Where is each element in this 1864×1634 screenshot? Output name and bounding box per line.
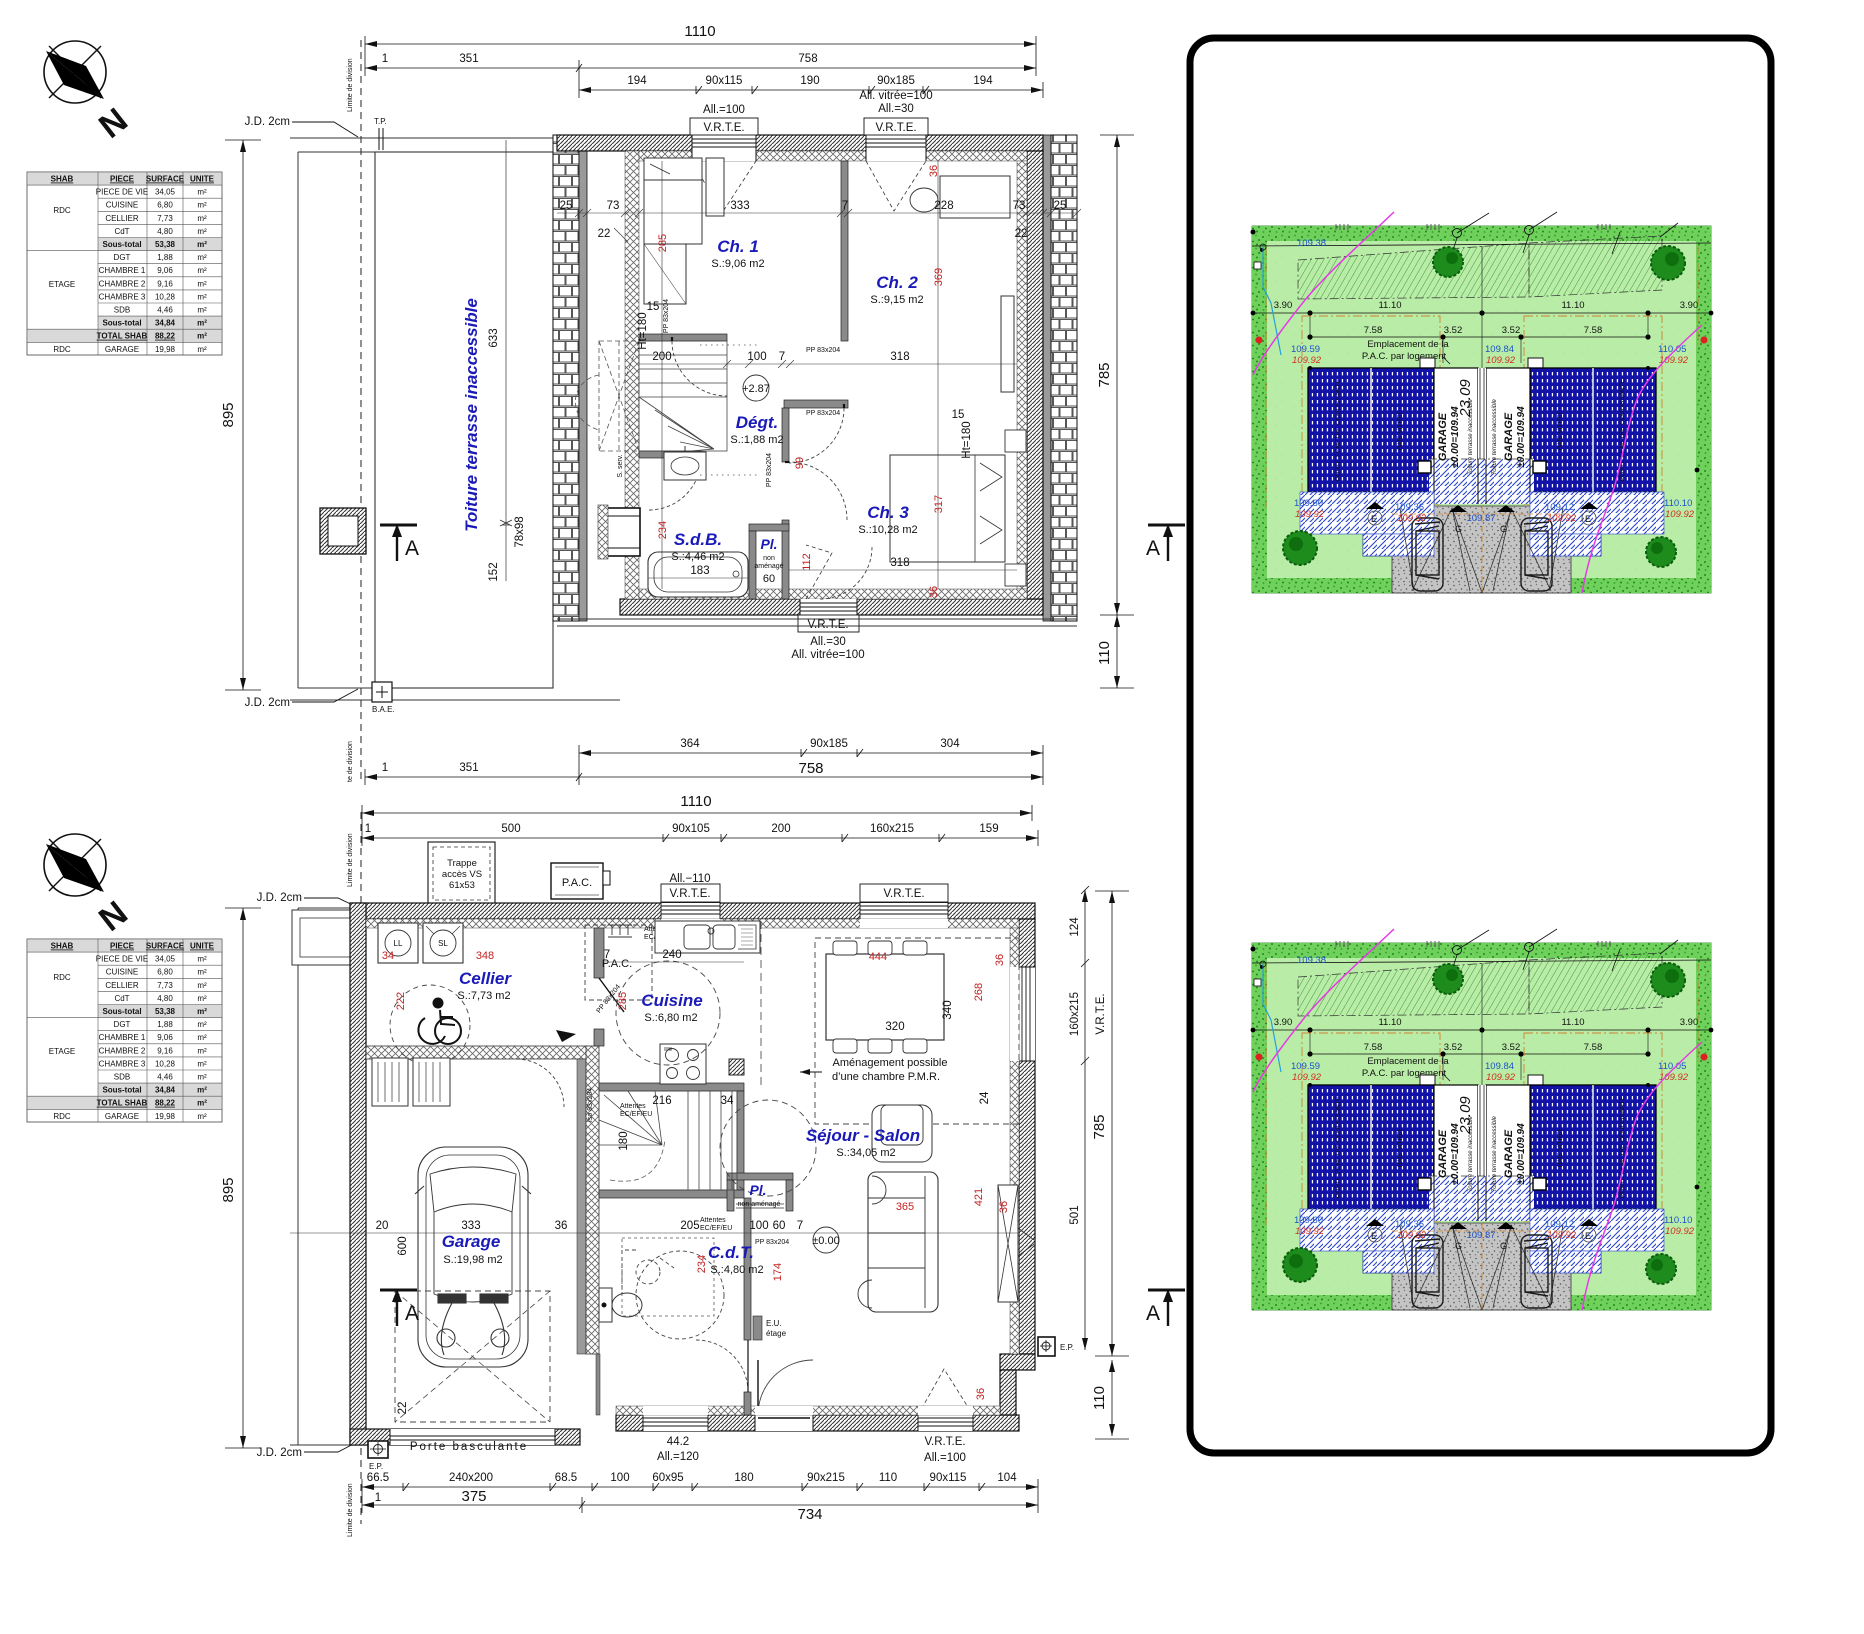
svg-text:100: 100 bbox=[610, 1472, 629, 1484]
svg-text:CELLIER: CELLIER bbox=[105, 214, 139, 223]
svg-text:421: 421 bbox=[973, 1188, 985, 1206]
svg-text:88,22: 88,22 bbox=[155, 332, 176, 341]
svg-text:24: 24 bbox=[979, 1091, 991, 1104]
svg-text:S.:9,15 m2: S.:9,15 m2 bbox=[870, 294, 923, 306]
svg-text:304: 304 bbox=[940, 738, 960, 750]
svg-text:25: 25 bbox=[560, 200, 573, 212]
svg-text:d’une chambre P.M.R.: d’une chambre P.M.R. bbox=[832, 1071, 940, 1083]
svg-text:Toiture terrasse inaccessible: Toiture terrasse inaccessible bbox=[462, 298, 481, 532]
svg-text:109.92: 109.92 bbox=[1547, 513, 1577, 524]
svg-text:P.A.C.: P.A.C. bbox=[562, 877, 592, 889]
svg-text:PP 83x204: PP 83x204 bbox=[806, 347, 840, 354]
svg-text:36: 36 bbox=[994, 954, 1006, 966]
svg-text:Pl.: Pl. bbox=[749, 1182, 766, 1198]
svg-text:20: 20 bbox=[376, 1220, 389, 1232]
svg-text:All.=100: All.=100 bbox=[703, 104, 745, 116]
svg-text:268: 268 bbox=[973, 983, 985, 1001]
svg-text:34: 34 bbox=[721, 1095, 734, 1107]
svg-text:J.D. 2cm: J.D. 2cm bbox=[257, 892, 302, 904]
svg-text:365: 365 bbox=[896, 1201, 914, 1213]
svg-text:36: 36 bbox=[555, 1220, 568, 1232]
svg-text:318: 318 bbox=[890, 557, 909, 569]
svg-text:501: 501 bbox=[1069, 1205, 1081, 1224]
svg-text:All.=30: All.=30 bbox=[878, 103, 913, 115]
svg-text:109.36: 109.36 bbox=[1395, 502, 1424, 513]
svg-text:109.92: 109.92 bbox=[1659, 355, 1689, 366]
svg-text:J.D. 2cm: J.D. 2cm bbox=[245, 116, 290, 128]
svg-text:340: 340 bbox=[942, 1000, 954, 1019]
svg-text:T.P.: T.P. bbox=[374, 117, 387, 126]
svg-text:étage: étage bbox=[766, 1329, 787, 1338]
svg-text:PP 83x204: PP 83x204 bbox=[663, 299, 670, 333]
svg-text:1: 1 bbox=[375, 1492, 381, 1504]
svg-text:S.:4,80 m2: S.:4,80 m2 bbox=[710, 1264, 763, 1276]
svg-text:GARAGE: GARAGE bbox=[1437, 412, 1449, 461]
svg-text:Trappe: Trappe bbox=[447, 858, 477, 869]
svg-text:S.:9,06 m2: S.:9,06 m2 bbox=[711, 258, 764, 270]
svg-text:73: 73 bbox=[607, 200, 620, 212]
svg-text:B.A.E.: B.A.E. bbox=[372, 705, 395, 714]
svg-text:109.59: 109.59 bbox=[1291, 344, 1320, 355]
svg-text:222: 222 bbox=[395, 992, 407, 1010]
svg-text:364: 364 bbox=[680, 738, 700, 750]
svg-text:Cellier: Cellier bbox=[459, 969, 512, 988]
svg-text:109.84: 109.84 bbox=[1485, 344, 1514, 355]
svg-text:234: 234 bbox=[657, 521, 669, 539]
svg-text:S. serv.: S. serv. bbox=[617, 454, 624, 477]
svg-text:Porte basculante: Porte basculante bbox=[410, 1441, 528, 1453]
svg-text:CdT: CdT bbox=[114, 227, 129, 236]
svg-text:100: 100 bbox=[749, 1220, 768, 1232]
svg-text:aménagé: aménagé bbox=[754, 563, 783, 570]
svg-text:All.=100: All.=100 bbox=[924, 1452, 966, 1464]
svg-text:34,84: 34,84 bbox=[155, 319, 176, 328]
svg-text:G: G bbox=[1500, 524, 1507, 534]
svg-text:7: 7 bbox=[779, 351, 785, 363]
svg-text:109.38: 109.38 bbox=[1297, 238, 1326, 249]
svg-text:109.92: 109.92 bbox=[1665, 509, 1695, 520]
svg-text:Ht=180: Ht=180 bbox=[961, 421, 973, 458]
svg-text:PIECE DE VIE: PIECE DE VIE bbox=[96, 188, 148, 197]
svg-text:+2.87: +2.87 bbox=[742, 383, 770, 395]
svg-text:36: 36 bbox=[998, 1201, 1010, 1213]
svg-text:109.92: 109.92 bbox=[1292, 355, 1322, 366]
svg-text:te de division: te de division bbox=[347, 741, 354, 782]
svg-text:E.P.: E.P. bbox=[369, 1462, 383, 1471]
svg-text:180: 180 bbox=[734, 1472, 753, 1484]
svg-text:m²: m² bbox=[197, 188, 207, 197]
svg-text:109.92: 109.92 bbox=[1397, 513, 1427, 524]
svg-text:m²: m² bbox=[197, 292, 207, 301]
svg-text:±0.00=109.94: ±0.00=109.94 bbox=[1516, 406, 1527, 468]
svg-text:22: 22 bbox=[1015, 228, 1028, 240]
svg-text:BAIE VITREE: BAIE VITREE bbox=[1397, 409, 1404, 450]
svg-text:Aménagement possible: Aménagement possible bbox=[833, 1057, 948, 1069]
svg-text:104: 104 bbox=[997, 1472, 1017, 1484]
svg-text:285: 285 bbox=[657, 234, 669, 252]
svg-text:6,80: 6,80 bbox=[157, 201, 173, 210]
svg-text:C.d.T.: C.d.T. bbox=[708, 1243, 754, 1262]
svg-text:758: 758 bbox=[798, 760, 823, 777]
svg-text:E.U.: E.U. bbox=[766, 1319, 782, 1328]
svg-text:ETAGE: ETAGE bbox=[49, 280, 76, 289]
svg-text:E.P.: E.P. bbox=[1060, 1343, 1074, 1352]
svg-text:accès VS: accès VS bbox=[442, 869, 482, 880]
svg-text:60x95: 60x95 bbox=[652, 1472, 683, 1484]
svg-text:1: 1 bbox=[382, 762, 388, 774]
svg-text:PIECE: PIECE bbox=[110, 175, 135, 184]
svg-text:160x215: 160x215 bbox=[1069, 992, 1081, 1036]
svg-text:S.:34,05 m2: S.:34,05 m2 bbox=[836, 1147, 895, 1159]
svg-text:S.:6,80 m2: S.:6,80 m2 bbox=[644, 1012, 697, 1024]
svg-text:m²: m² bbox=[197, 345, 207, 354]
svg-text:E: E bbox=[1585, 514, 1591, 524]
svg-text:J.D. 2cm: J.D. 2cm bbox=[257, 1447, 302, 1459]
svg-text:Ch. 3: Ch. 3 bbox=[867, 503, 909, 522]
svg-text:1: 1 bbox=[365, 823, 371, 835]
svg-text:LL: LL bbox=[394, 939, 403, 948]
svg-text:G: G bbox=[1455, 524, 1462, 534]
svg-text:34,05: 34,05 bbox=[155, 188, 176, 197]
svg-text:All.=120: All.=120 bbox=[657, 1451, 699, 1463]
svg-text:Ch. 1: Ch. 1 bbox=[717, 237, 759, 256]
svg-text:S.:10,28 m2: S.:10,28 m2 bbox=[858, 524, 917, 536]
svg-text:758: 758 bbox=[798, 53, 817, 65]
svg-text:216: 216 bbox=[652, 1095, 671, 1107]
svg-text:GARAGE: GARAGE bbox=[105, 345, 139, 354]
svg-text:7,73: 7,73 bbox=[157, 214, 173, 223]
svg-text:E: E bbox=[1371, 514, 1377, 524]
svg-text:109.87: 109.87 bbox=[1466, 513, 1495, 524]
svg-text:1: 1 bbox=[382, 53, 388, 65]
svg-text:Iso 83x204: Iso 83x204 bbox=[587, 1088, 594, 1122]
svg-text:318: 318 bbox=[890, 351, 909, 363]
svg-text:4,80: 4,80 bbox=[157, 227, 173, 236]
svg-text:CHAMBRE 1: CHAMBRE 1 bbox=[99, 266, 146, 275]
svg-text:All. vitrée=100: All. vitrée=100 bbox=[791, 649, 864, 661]
svg-text:90x215: 90x215 bbox=[807, 1472, 845, 1484]
svg-text:734: 734 bbox=[797, 1506, 822, 1523]
svg-text:90x105: 90x105 bbox=[672, 823, 710, 835]
svg-text:15: 15 bbox=[952, 409, 965, 421]
svg-text:25: 25 bbox=[1054, 200, 1067, 212]
svg-text:Dégt.: Dégt. bbox=[736, 413, 779, 432]
svg-text:V.R.T.E.: V.R.T.E. bbox=[669, 888, 710, 900]
svg-text:90x115: 90x115 bbox=[930, 1472, 967, 1484]
svg-text:Sous-total: Sous-total bbox=[102, 319, 141, 328]
svg-text:895: 895 bbox=[220, 1177, 237, 1202]
svg-text:S.d.B.: S.d.B. bbox=[674, 530, 722, 549]
svg-text:444: 444 bbox=[869, 951, 887, 963]
svg-text:44.2: 44.2 bbox=[667, 1436, 689, 1448]
svg-text:375: 375 bbox=[461, 1488, 486, 1505]
svg-text:Limite de division: Limite de division bbox=[347, 833, 354, 887]
svg-text:200: 200 bbox=[771, 823, 790, 835]
svg-text:Emplacement de la: Emplacement de la bbox=[1367, 339, 1449, 350]
svg-text:SURFACE: SURFACE bbox=[146, 175, 185, 184]
svg-text:22: 22 bbox=[598, 228, 611, 240]
svg-text:CUISINE: CUISINE bbox=[106, 201, 138, 210]
svg-text:Ch. 2: Ch. 2 bbox=[876, 273, 918, 292]
svg-text:333: 333 bbox=[730, 200, 749, 212]
svg-text:m²: m² bbox=[197, 266, 207, 275]
svg-text:90x185: 90x185 bbox=[810, 738, 848, 750]
svg-text:785: 785 bbox=[1096, 362, 1113, 387]
svg-text:600: 600 bbox=[397, 1236, 409, 1255]
svg-text:36: 36 bbox=[975, 1388, 987, 1400]
svg-text:3.52: 3.52 bbox=[1444, 325, 1463, 336]
svg-text:DGT: DGT bbox=[114, 253, 131, 262]
svg-text:non aménagé: non aménagé bbox=[738, 1201, 781, 1208]
svg-text:110: 110 bbox=[1091, 1386, 1108, 1410]
svg-text:4,46: 4,46 bbox=[157, 306, 173, 315]
svg-text:34: 34 bbox=[382, 950, 394, 962]
svg-text:3.90: 3.90 bbox=[1274, 300, 1293, 311]
svg-text:7: 7 bbox=[842, 200, 848, 212]
svg-text:109.92: 109.92 bbox=[1295, 509, 1325, 520]
svg-text:110.10: 110.10 bbox=[1664, 498, 1692, 509]
svg-text:PP 83x204: PP 83x204 bbox=[755, 1239, 789, 1246]
svg-text:234: 234 bbox=[696, 1255, 708, 1273]
svg-text:V.R.T.E.: V.R.T.E. bbox=[875, 122, 916, 134]
svg-text:60: 60 bbox=[763, 573, 775, 585]
svg-text:RDC: RDC bbox=[53, 345, 71, 354]
svg-text:EC/EF/EU: EC/EF/EU bbox=[620, 1111, 652, 1118]
svg-text:±0.00: ±0.00 bbox=[812, 1235, 839, 1247]
svg-text:9,06: 9,06 bbox=[157, 266, 173, 275]
svg-text:240x200: 240x200 bbox=[449, 1472, 493, 1484]
svg-text:Attentes: Attentes bbox=[700, 1217, 726, 1224]
svg-text:333: 333 bbox=[461, 1220, 480, 1232]
svg-text:9,16: 9,16 bbox=[157, 279, 173, 288]
svg-text:S.:19,98 m2: S.:19,98 m2 bbox=[443, 1254, 502, 1266]
svg-text:Limite de division: Limite de division bbox=[347, 1483, 354, 1537]
svg-text:m²: m² bbox=[197, 332, 207, 341]
svg-text:GARAGE: GARAGE bbox=[1503, 412, 1515, 461]
svg-text:109.60: 109.60 bbox=[1294, 498, 1323, 509]
svg-text:All.−110: All.−110 bbox=[669, 873, 710, 885]
svg-text:BAIE VITREE: BAIE VITREE bbox=[1557, 409, 1564, 450]
svg-text:1110: 1110 bbox=[684, 23, 715, 40]
svg-text:S.:7,73 m2: S.:7,73 m2 bbox=[457, 990, 510, 1002]
svg-text:Ht=180: Ht=180 bbox=[637, 312, 649, 349]
svg-text:183: 183 bbox=[690, 565, 709, 577]
svg-text:23.09: 23.09 bbox=[1457, 379, 1474, 418]
svg-text:190: 190 bbox=[800, 75, 819, 87]
svg-text:10,28: 10,28 bbox=[155, 292, 176, 301]
svg-text:160x215: 160x215 bbox=[870, 823, 914, 835]
svg-text:UNITE: UNITE bbox=[190, 175, 215, 184]
svg-text:1110: 1110 bbox=[680, 793, 711, 810]
svg-text:TOTAL SHAB: TOTAL SHAB bbox=[97, 332, 148, 341]
svg-text:S.:1,88 m2: S.:1,88 m2 bbox=[730, 434, 783, 446]
svg-text:109.92: 109.92 bbox=[1486, 355, 1516, 366]
svg-text:PORTE FENETRE COULISSANTE: PORTE FENETRE COULISSANTE bbox=[1335, 378, 1342, 481]
svg-text:V.R.T.E.: V.R.T.E. bbox=[807, 619, 848, 631]
svg-text:m²: m² bbox=[197, 214, 207, 223]
svg-text:Pl.: Pl. bbox=[760, 536, 777, 552]
svg-text:m²: m² bbox=[197, 319, 207, 328]
svg-text:66.5: 66.5 bbox=[367, 1472, 389, 1484]
svg-text:112: 112 bbox=[801, 553, 813, 571]
svg-text:152: 152 bbox=[488, 562, 500, 581]
svg-text:19,98: 19,98 bbox=[155, 345, 176, 354]
svg-text:110: 110 bbox=[879, 1472, 897, 1484]
svg-text:73: 73 bbox=[1013, 200, 1026, 212]
svg-text:V.R.T.E.: V.R.T.E. bbox=[703, 122, 744, 134]
svg-text:Limite de division: Limite de division bbox=[347, 58, 354, 112]
svg-text:317: 317 bbox=[933, 495, 945, 513]
svg-text:7.58: 7.58 bbox=[1364, 325, 1383, 336]
svg-text:180: 180 bbox=[618, 1131, 630, 1150]
svg-text:205: 205 bbox=[680, 1220, 699, 1232]
svg-text:500: 500 bbox=[501, 823, 520, 835]
svg-text:78x98: 78x98 bbox=[514, 516, 526, 547]
svg-text:174: 174 bbox=[772, 1263, 784, 1281]
svg-text:11.10: 11.10 bbox=[1561, 300, 1584, 311]
svg-text:90x185: 90x185 bbox=[877, 75, 915, 87]
svg-text:EC/EF/EU: EC/EF/EU bbox=[700, 1225, 732, 1232]
svg-text:194: 194 bbox=[973, 75, 993, 87]
svg-text:J.D. 2cm: J.D. 2cm bbox=[245, 697, 290, 709]
svg-text:7: 7 bbox=[604, 949, 610, 961]
svg-text:V.R.T.E.: V.R.T.E. bbox=[924, 1436, 965, 1448]
svg-text:SL: SL bbox=[438, 939, 448, 948]
svg-text:m²: m² bbox=[197, 306, 207, 315]
svg-text:Séjour - Salon: Séjour - Salon bbox=[806, 1126, 920, 1145]
svg-text:240: 240 bbox=[662, 949, 681, 961]
svg-text:194: 194 bbox=[627, 75, 647, 87]
svg-text:99: 99 bbox=[794, 457, 806, 469]
svg-text:60: 60 bbox=[773, 1220, 786, 1232]
svg-text:Attentes: Attentes bbox=[620, 1103, 646, 1110]
svg-text:Sous-total: Sous-total bbox=[102, 240, 141, 249]
svg-text:15: 15 bbox=[647, 301, 660, 313]
svg-text:228: 228 bbox=[934, 200, 953, 212]
svg-text:285: 285 bbox=[617, 992, 629, 1010]
svg-text:m²: m² bbox=[197, 279, 207, 288]
svg-text:m²: m² bbox=[197, 201, 207, 210]
svg-text:CHAMBRE 3: CHAMBRE 3 bbox=[99, 292, 146, 301]
svg-text:7.58: 7.58 bbox=[1584, 325, 1603, 336]
svg-text:351: 351 bbox=[459, 53, 478, 65]
svg-text:V.R.T.E.: V.R.T.E. bbox=[883, 888, 924, 900]
svg-text:124: 124 bbox=[1069, 917, 1081, 937]
svg-text:11.10: 11.10 bbox=[1378, 300, 1401, 311]
svg-text:m²: m² bbox=[197, 240, 207, 249]
svg-text:All.=30: All.=30 bbox=[810, 636, 845, 648]
svg-text:36: 36 bbox=[928, 165, 940, 177]
svg-text:1,88: 1,88 bbox=[157, 253, 173, 262]
svg-text:22: 22 bbox=[397, 1402, 409, 1415]
svg-text:CHAMBRE 2: CHAMBRE 2 bbox=[99, 279, 146, 288]
svg-text:Garage: Garage bbox=[442, 1232, 501, 1251]
svg-text:68.5: 68.5 bbox=[555, 1472, 577, 1484]
svg-text:351: 351 bbox=[459, 762, 478, 774]
svg-text:110: 110 bbox=[1096, 641, 1113, 665]
svg-text:V.R.T.E.: V.R.T.E. bbox=[1095, 993, 1107, 1034]
svg-text:36: 36 bbox=[928, 586, 940, 598]
svg-text:m²: m² bbox=[197, 253, 207, 262]
svg-text:Toiture terrasse inaccessible: Toiture terrasse inaccessible bbox=[1492, 398, 1498, 474]
svg-text:320: 320 bbox=[885, 1021, 904, 1033]
svg-text:53,38: 53,38 bbox=[155, 240, 176, 249]
svg-text:m²: m² bbox=[197, 227, 207, 236]
svg-text:100: 100 bbox=[747, 351, 766, 363]
svg-text:159: 159 bbox=[979, 823, 998, 835]
svg-text:61x53: 61x53 bbox=[449, 880, 475, 891]
svg-text:SDB: SDB bbox=[114, 306, 130, 315]
svg-text:SHAB: SHAB bbox=[51, 175, 74, 184]
svg-text:PP 83x204: PP 83x204 bbox=[806, 410, 840, 417]
svg-text:3.52: 3.52 bbox=[1502, 325, 1521, 336]
svg-text:90x115: 90x115 bbox=[706, 75, 743, 87]
svg-text:3.90: 3.90 bbox=[1680, 300, 1699, 311]
svg-text:PP 83x204: PP 83x204 bbox=[766, 453, 773, 487]
svg-text:7: 7 bbox=[797, 1220, 803, 1232]
svg-text:S.:4,46 m2: S.:4,46 m2 bbox=[671, 551, 724, 563]
svg-text:Cuisine: Cuisine bbox=[641, 991, 702, 1010]
svg-text:348: 348 bbox=[476, 950, 494, 962]
svg-text:895: 895 bbox=[220, 402, 237, 427]
svg-text:633: 633 bbox=[488, 328, 500, 347]
svg-text:369: 369 bbox=[933, 268, 945, 286]
svg-text:RDC: RDC bbox=[53, 206, 71, 215]
svg-text:785: 785 bbox=[1091, 1114, 1108, 1139]
svg-text:non: non bbox=[763, 555, 775, 562]
svg-text:109.12: 109.12 bbox=[1545, 502, 1574, 513]
